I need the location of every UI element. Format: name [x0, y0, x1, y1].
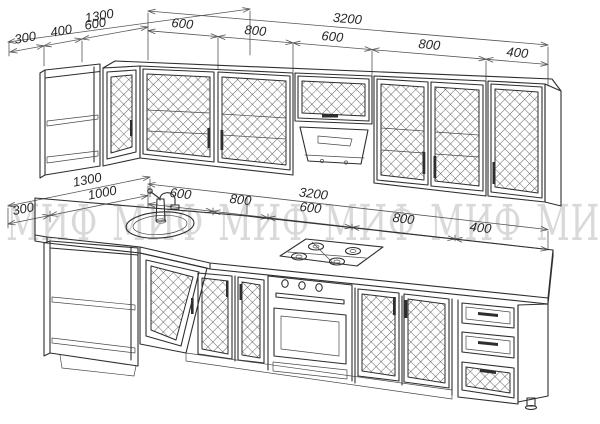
dim-lower-width-600a: 600: [169, 185, 193, 202]
shelf: [47, 115, 98, 126]
dimension-line-1300: [8, 9, 250, 42]
wall-cabinet-800-left: [140, 66, 293, 175]
corner-open-shelf-wall-unit: [40, 64, 100, 178]
dim-lower-width-600b: 600: [299, 199, 323, 216]
cabinet-door: [143, 69, 214, 162]
dim-upper-width-400: 400: [506, 44, 530, 61]
burner: [309, 243, 324, 250]
plinth: [60, 355, 136, 376]
dim-lower-width-800b: 800: [392, 210, 416, 227]
kitchen-technical-drawing: МИФ МИФ МИФ МИФ МИФ МИФ 1300 300 400 600…: [0, 0, 600, 424]
right-side-panel: [518, 304, 548, 402]
dim-upper-width-600b: 600: [321, 28, 345, 45]
dim-upper-depth-400: 400: [49, 21, 74, 40]
range-hood: [300, 127, 368, 164]
corner-wall-cabinet: [103, 66, 140, 166]
corner-open-shelf-base-unit: [44, 241, 138, 376]
door-handle: [423, 152, 426, 174]
oven-window: [281, 316, 339, 356]
drawer-unit: [458, 300, 548, 410]
door-handle: [130, 120, 133, 136]
base-cabinet-800-left: [198, 273, 264, 363]
shelf: [52, 338, 135, 353]
oven-knob: [282, 280, 288, 288]
corner-base-cabinet: [140, 253, 207, 353]
dim-upper-width-800a: 800: [244, 22, 268, 39]
oven-handle: [276, 293, 344, 304]
cabinet-door: [377, 79, 428, 185]
door-handle: [208, 128, 211, 148]
dimension-line-width-chain: [148, 31, 548, 65]
oven-knob: [299, 282, 305, 290]
cabinet-door: [107, 70, 136, 159]
cabinet-door: [431, 82, 483, 191]
right-side-panel: [545, 84, 561, 206]
dim-upper-width-600a: 600: [171, 15, 195, 32]
door-handle: [240, 284, 243, 300]
door-handle: [221, 130, 224, 150]
drawer: [462, 303, 514, 328]
door-handle: [226, 281, 229, 297]
drawer-handle: [478, 341, 498, 346]
door-handle: [191, 298, 194, 314]
hood-vent-slot: [318, 136, 352, 146]
dim-upper-width-total: 3200: [332, 10, 363, 28]
base-cabinet-800-right: [355, 288, 452, 395]
door-handle: [434, 156, 437, 178]
door-handle: [322, 114, 338, 118]
dim-upper-width-800b: 800: [418, 36, 442, 53]
wall-cabinet-800-right: [374, 76, 486, 196]
wall-cabinet-400: [488, 81, 545, 202]
upper-dimensions: 1300 300 400 600 3200 600 800 600 800 40…: [8, 6, 548, 86]
door-handle: [393, 297, 396, 315]
drawer-handle: [478, 312, 498, 317]
drawer-lattice: [462, 362, 514, 398]
drawing-canvas: МИФ МИФ МИФ МИФ МИФ МИФ 1300 300 400 600…: [0, 0, 600, 424]
dim-upper-depth-600: 600: [83, 14, 108, 33]
door-handle: [493, 162, 496, 184]
door-handle: [405, 300, 408, 318]
dim-lower-width-800a: 800: [229, 191, 253, 208]
hood-flap-cabinet: [295, 73, 372, 124]
shelf: [52, 297, 135, 310]
shelf: [47, 151, 98, 163]
dim-upper-depth-300: 300: [13, 28, 38, 47]
drawer: [462, 332, 514, 358]
dim-lower-width-400: 400: [469, 219, 493, 236]
oven: [268, 276, 352, 381]
cabinet-door: [491, 84, 542, 198]
cabinet-door: [404, 294, 449, 388]
cabinet-door: [218, 72, 290, 170]
cabinet-door: [358, 289, 399, 381]
oven-knob: [316, 284, 322, 292]
